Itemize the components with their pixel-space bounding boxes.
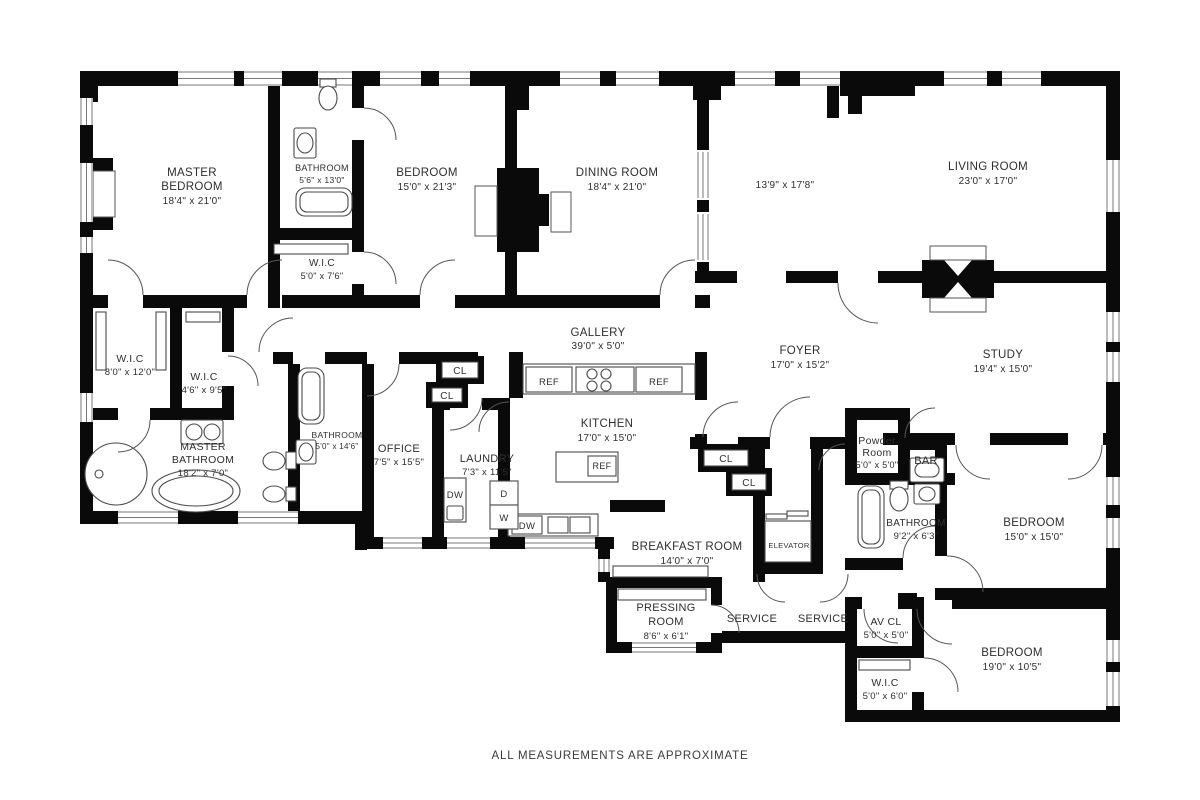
- wall-segment: [711, 577, 722, 605]
- wall-segment: [840, 71, 915, 96]
- room-label: Powder: [858, 435, 896, 447]
- wall-segment: [598, 537, 610, 559]
- window: [800, 71, 840, 86]
- closet-lining: [156, 312, 166, 370]
- room-label: 15'0" x 15'0": [1005, 532, 1064, 543]
- room-label: 13'9" x 17'8": [756, 180, 815, 191]
- bathtub-inner: [159, 476, 233, 506]
- wall-segment: [827, 86, 839, 118]
- room-label: 5'0" x 14'6": [315, 442, 358, 451]
- room-label: BEDROOM: [396, 167, 458, 179]
- wall-segment: [482, 398, 510, 410]
- fireplace-mass: [93, 217, 113, 230]
- toilet-bowl-icon: [890, 487, 908, 511]
- wall-segment: [80, 295, 108, 308]
- sink-icon: [570, 517, 590, 533]
- door-swing-icon: [770, 397, 810, 437]
- hearth: [93, 171, 115, 217]
- room-label: 7'3" x 11'5": [462, 467, 512, 478]
- window: [560, 71, 600, 86]
- window: [616, 71, 659, 86]
- door-swing-icon: [703, 402, 738, 437]
- wall-segment: [610, 500, 665, 512]
- window: [944, 71, 987, 86]
- door-swing-icon: [924, 658, 958, 692]
- wall-segment: [845, 646, 924, 658]
- room-label: CL: [440, 391, 454, 402]
- door-swing-icon: [108, 260, 143, 295]
- room-label: BEDROOM: [161, 181, 223, 193]
- room-label: 8'0" x 12'0": [105, 367, 155, 378]
- wall-segment: [352, 284, 364, 308]
- room-label: 5'0" x 7'6": [301, 271, 344, 281]
- door-swing-icon: [947, 556, 983, 592]
- toilet-tank-icon: [286, 452, 296, 469]
- room-label: BATHROOM: [886, 518, 945, 529]
- room-label: W.I.C: [190, 371, 217, 383]
- shower-icon: [85, 443, 147, 505]
- sink-basin-icon: [919, 487, 935, 501]
- wall-segment: [80, 71, 93, 98]
- closet-lining: [859, 660, 910, 670]
- sink-icon: [548, 517, 568, 533]
- room-label: W: [499, 513, 508, 524]
- wall-segment: [490, 537, 525, 549]
- wall-segment: [775, 71, 800, 86]
- wall-segment: [273, 352, 293, 364]
- hearth: [930, 246, 986, 260]
- wall-segment: [811, 449, 823, 574]
- shower-drain-icon: [95, 470, 103, 478]
- window: [632, 642, 696, 653]
- room-label: BEDROOM: [1003, 517, 1065, 529]
- wall-segment: [987, 71, 1002, 86]
- wall-segment: [80, 125, 93, 163]
- fireplace-layer: [93, 158, 994, 312]
- wall-segment: [432, 408, 444, 537]
- wall-segment: [952, 597, 1120, 609]
- room-label: 5'0" x 5'0": [856, 460, 899, 470]
- room-label: LIVING ROOM: [948, 161, 1028, 173]
- wall-segment: [990, 433, 1068, 445]
- room-label: 9'2" x 6'3": [894, 531, 939, 542]
- room-label: MASTER: [167, 167, 217, 179]
- window: [598, 559, 610, 572]
- room-label: W.I.C: [309, 258, 335, 269]
- window: [80, 237, 93, 253]
- room-label: 8'6" x 6'1": [644, 631, 689, 642]
- door-swing-icon: [838, 283, 878, 323]
- wall-segment: [234, 71, 244, 86]
- door-swing-icon: [364, 108, 396, 140]
- wall-segment: [505, 252, 517, 295]
- room-label: 18'2" x 7'0": [178, 468, 228, 479]
- bathtub-inner: [302, 372, 320, 420]
- toilet-bowl-icon: [263, 452, 285, 470]
- room-label: REF: [593, 461, 612, 471]
- room-label: W.I.C: [116, 353, 143, 365]
- room-label: CL: [742, 478, 756, 489]
- room-label: 7'5" x 15'5": [374, 457, 424, 468]
- window: [447, 537, 490, 549]
- window: [80, 163, 93, 222]
- window: [380, 71, 421, 86]
- room-label: 5'6" x 13'0": [299, 175, 345, 185]
- hearth: [475, 186, 497, 236]
- window: [80, 393, 93, 422]
- wall-segment: [600, 71, 616, 86]
- fireplace-mass: [497, 168, 539, 252]
- room-label: ELEVATOR: [768, 541, 809, 550]
- door-swing-icon: [364, 252, 396, 284]
- window: [244, 71, 282, 86]
- wall-segment: [845, 710, 1120, 722]
- bidet-bowl-icon: [263, 486, 285, 502]
- wall-segment: [786, 271, 838, 283]
- room-label: DINING ROOM: [576, 167, 659, 179]
- fireplace-mass: [539, 194, 549, 226]
- door-swing-icon: [820, 574, 848, 602]
- wall-segment: [325, 352, 367, 364]
- room-label: SERVICE: [798, 613, 848, 625]
- room-label: 18'4" x 21'0": [588, 182, 647, 193]
- window: [238, 511, 298, 524]
- room-label: CL: [453, 366, 467, 377]
- fireplace-mass: [93, 158, 113, 171]
- elevator-door-icon: [787, 511, 808, 516]
- window: [1106, 518, 1120, 548]
- door-swing-icon: [228, 356, 258, 386]
- wall-segment: [268, 228, 364, 240]
- wall-segment: [150, 408, 222, 420]
- wall-segment: [505, 86, 517, 170]
- window: [697, 152, 709, 198]
- wall-segment: [753, 562, 823, 574]
- window: [1106, 640, 1120, 662]
- window: [118, 511, 178, 524]
- wall-segment: [352, 71, 380, 86]
- room-label: OFFICE: [378, 443, 420, 455]
- sink-basin-icon: [186, 424, 202, 440]
- wall-segment: [422, 537, 447, 549]
- sink-basin-icon: [204, 424, 220, 440]
- counter-lining: [613, 566, 708, 577]
- wall-segment: [352, 86, 364, 108]
- footer-note: ALL MEASUREMENTS ARE APPROXIMATE: [20, 750, 1200, 762]
- wall-segment: [92, 408, 118, 420]
- window: [1106, 672, 1120, 706]
- window: [1106, 477, 1120, 505]
- room-label: REF: [649, 377, 669, 388]
- wall-segment: [848, 96, 862, 114]
- closet-lining: [186, 312, 220, 322]
- window: [697, 214, 709, 260]
- wall-segment: [696, 642, 722, 653]
- wall-segment: [845, 558, 903, 570]
- closet-lining: [96, 312, 106, 370]
- wall-segment: [509, 352, 523, 398]
- room-label: ROOM: [648, 616, 683, 628]
- room-label: 23'0" x 17'0": [959, 176, 1018, 187]
- room-label: 39'0" x 5'0": [572, 341, 625, 352]
- wall-segment: [80, 511, 118, 524]
- window: [1106, 312, 1120, 342]
- room-label: PRESSING: [636, 602, 695, 614]
- window: [1106, 352, 1120, 382]
- wall-segment: [80, 253, 93, 393]
- closet-lining: [618, 589, 706, 600]
- wall-segment: [178, 511, 238, 524]
- wall-segment: [845, 408, 857, 482]
- window: [1106, 160, 1120, 212]
- room-label: 4'6" x 9'5": [182, 385, 227, 396]
- wall-segment: [222, 308, 234, 352]
- wall-segment: [606, 577, 722, 588]
- room-label: Room: [862, 447, 891, 459]
- room-label: BREAKFAST ROOM: [632, 541, 743, 553]
- window: [735, 71, 775, 86]
- room-label: 17'0" x 15'2": [771, 360, 830, 371]
- door-swing-icon: [1068, 445, 1102, 479]
- bathtub-inner: [300, 192, 348, 212]
- bathtub-inner: [862, 490, 880, 544]
- door-swing-icon: [956, 445, 990, 479]
- room-label: DW: [447, 490, 463, 501]
- door-swing-icon: [660, 260, 695, 295]
- wall-segment: [362, 364, 374, 537]
- room-label: LAUNDRY: [460, 453, 515, 465]
- room-label: FOYER: [779, 345, 820, 357]
- room-label: 14'0" x 7'0": [661, 556, 714, 567]
- wall-segment: [143, 295, 247, 308]
- wall-segment: [695, 352, 707, 400]
- sink-icon: [447, 506, 463, 520]
- wall-segment: [282, 295, 420, 308]
- room-label: 19'0" x 10'5": [983, 662, 1042, 673]
- hearth: [551, 192, 571, 232]
- window: [525, 537, 595, 549]
- bidet-tank-icon: [286, 487, 296, 501]
- door-swing-icon: [259, 318, 293, 352]
- wall-segment: [80, 222, 93, 237]
- window: [1002, 71, 1041, 86]
- wall-segment: [170, 308, 182, 408]
- room-label: MASTER: [180, 441, 226, 453]
- wall-segment: [282, 71, 318, 86]
- wall-segment: [1106, 212, 1120, 312]
- wall-segment: [470, 71, 560, 86]
- wall-segment: [80, 71, 178, 86]
- sink-basin-icon: [297, 133, 313, 153]
- burner-icon: [601, 381, 611, 391]
- window: [383, 537, 422, 549]
- room-label: AV CL: [870, 616, 901, 628]
- wall-segment: [606, 577, 617, 653]
- room-label: 19'4" x 15'0": [974, 364, 1033, 375]
- room-label: BATHROOM: [295, 163, 349, 173]
- burner-icon: [587, 369, 597, 379]
- wall-segment: [355, 537, 383, 549]
- room-label: D: [500, 489, 507, 500]
- room-label: DW: [519, 521, 535, 532]
- sink-basin-icon: [299, 443, 313, 461]
- wall-segment: [1106, 342, 1120, 352]
- wall-segment: [606, 642, 632, 653]
- closet-lining: [274, 244, 348, 254]
- hearth: [930, 298, 986, 312]
- wall-segment: [399, 352, 433, 364]
- window: [80, 98, 93, 125]
- wall-segment: [695, 295, 710, 308]
- wall-segment: [659, 71, 735, 86]
- burner-icon: [587, 381, 597, 391]
- wall-segment: [1106, 505, 1120, 518]
- room-label: BATHROOM: [312, 430, 363, 440]
- floor-plan-canvas: MASTERBEDROOM18'4" x 21'0"BATHROOM5'6" x…: [0, 0, 1200, 800]
- room-label: SERVICE: [727, 613, 777, 625]
- door-swing-icon: [420, 260, 455, 295]
- room-label: 5'0" x 6'0": [863, 691, 908, 702]
- wall-segment: [697, 86, 709, 150]
- wall-segment: [697, 200, 709, 212]
- wall-segment: [455, 295, 660, 308]
- window: [178, 71, 234, 86]
- window: [439, 71, 470, 86]
- floor-plan-page: MASTERBEDROOM18'4" x 21'0"BATHROOM5'6" x…: [0, 0, 1200, 800]
- room-label: 15'0" x 21'3": [398, 182, 457, 193]
- burner-icon: [601, 369, 611, 379]
- room-label: STUDY: [983, 349, 1024, 361]
- room-label: GALLERY: [571, 327, 626, 339]
- room-label: REF: [539, 377, 559, 388]
- wall-segment: [421, 71, 439, 86]
- room-label: BEDROOM: [981, 647, 1043, 659]
- wall-segment: [1103, 433, 1120, 445]
- elevator-door-icon: [766, 514, 787, 519]
- wall-segment: [268, 86, 280, 308]
- room-label: 5'0" x 5'0": [864, 630, 909, 641]
- toilet-bowl-icon: [319, 86, 337, 110]
- wall-segment: [695, 434, 707, 449]
- room-label: 18'4" x 21'0": [163, 196, 222, 207]
- wall-segment: [912, 692, 924, 710]
- wall-segment: [695, 271, 737, 283]
- wall-segment: [1106, 71, 1120, 160]
- room-label: W.I.C: [871, 677, 898, 689]
- room-label: 17'0" x 15'0": [578, 433, 637, 444]
- room-label: KITCHEN: [581, 418, 634, 430]
- room-label: BAR: [914, 455, 938, 467]
- wall-segment: [1106, 382, 1120, 477]
- room-label: CL: [719, 454, 733, 465]
- room-label: BATHROOM: [172, 454, 234, 466]
- wall-segment: [722, 631, 857, 643]
- wall-segment: [1106, 662, 1120, 672]
